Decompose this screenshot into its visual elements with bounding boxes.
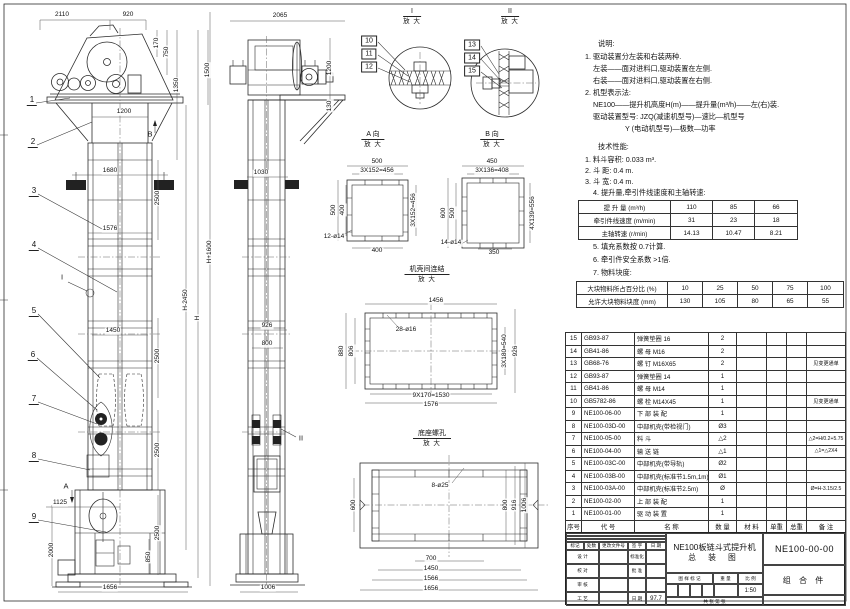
bom-qty: 1	[709, 495, 737, 508]
tb-doc: 更改文件号	[599, 542, 628, 550]
note-line: 驱动装置型号: JZQ(减速机型号)—速比—机型号	[593, 113, 745, 120]
dimension-label: 400	[371, 248, 384, 255]
view-label-name: II	[501, 8, 519, 17]
tb-sheets: 共 张 第 张	[666, 597, 763, 606]
bom-remark	[807, 508, 846, 521]
dimension-label: 2500	[155, 348, 162, 364]
section-mark: B	[147, 130, 152, 138]
dimension-label: 1030	[253, 170, 269, 177]
section-mark: II	[299, 434, 303, 442]
note-line: 2. 机型表示法:	[585, 89, 631, 96]
item-type: 组 合 件	[763, 565, 846, 595]
dimension-label: 806	[349, 345, 356, 358]
dimension-label: 3X136=408	[474, 168, 509, 175]
dimension-label: 1576	[102, 226, 118, 233]
bom-total-weight	[787, 358, 807, 371]
bom-total-weight	[787, 470, 807, 483]
bom-qty: 1	[709, 408, 737, 421]
bom-code: GB5782-86	[582, 395, 635, 408]
balloon-number: 8	[29, 452, 39, 462]
bom-code: GB41-86	[582, 383, 635, 396]
bom-unit-weight	[767, 470, 787, 483]
bom-code: NE100-03D-00	[582, 420, 635, 433]
note-line: 4. 提升量,牵引件线速度和主轴转速:	[593, 189, 706, 196]
dimension-label: 130	[327, 100, 334, 113]
bom-no: 12	[566, 370, 582, 383]
view-label-name: 机壳间连结	[405, 266, 450, 275]
bom-qty: △1	[709, 445, 737, 458]
bom-unit-weight	[767, 420, 787, 433]
bom-remark	[807, 345, 846, 358]
bom-unit-weight	[767, 458, 787, 471]
dimension-label: 800	[503, 499, 510, 512]
bom-total-weight	[787, 508, 807, 521]
balloon-number: 7	[29, 395, 39, 405]
bom-no: 1	[566, 508, 582, 521]
bom-qty: Ø1	[709, 470, 737, 483]
bom-unit-weight	[767, 333, 787, 346]
dimension-label: 1456	[428, 298, 444, 305]
note-line: 3. 斗 宽: 0.4 m.	[585, 178, 633, 185]
bom-no: 10	[566, 395, 582, 408]
view-label-scale: 放 大	[403, 17, 421, 25]
bom-no: 13	[566, 358, 582, 371]
bom-remark	[807, 470, 846, 483]
view-a-detail	[347, 180, 408, 241]
bom-qty: 2	[709, 358, 737, 371]
bom-unit-weight	[767, 508, 787, 521]
bom-total-weight	[787, 445, 807, 458]
bom-name: 弹簧垫圈 16	[635, 333, 709, 346]
bom-total-weight	[787, 495, 807, 508]
bom-material	[737, 383, 767, 396]
dimension-label: 3X152=456	[411, 192, 418, 227]
bom-name: 中部机壳(标准节2.5m)	[635, 483, 709, 496]
tb-sign: 签 字	[628, 542, 646, 550]
bom-material	[737, 495, 767, 508]
bom-row: 1 NE100-01-00 驱 动 装 置 1	[566, 508, 846, 521]
tb-date: 日 期	[646, 542, 666, 550]
bom-unit-weight	[767, 395, 787, 408]
dimension-label: 28-ø16	[395, 327, 418, 334]
tb-stamp: 图 样 标 记	[666, 573, 713, 584]
view-label: I 放 大	[403, 8, 421, 25]
note-line: 左装——面对进料口,驱动装置在左侧.	[593, 65, 712, 72]
bom-table: 15 GB93-87 弹簧垫圈 16 2 14 GB41-86 螺 母 M16 …	[565, 332, 846, 533]
drawing-sheet: 2110920170750135015001200168025001576H+1…	[0, 0, 850, 609]
bom-code: GB41-86	[582, 345, 635, 358]
bom-unit-weight	[767, 483, 787, 496]
bom-material	[737, 333, 767, 346]
view-label: A 向 放 大	[361, 131, 384, 148]
balloon-number: 6	[28, 351, 38, 361]
balloon-number: 2	[28, 138, 38, 148]
bom-name: 输 送 链	[635, 445, 709, 458]
dimension-label: 9X170=1530	[411, 393, 450, 400]
bom-no: 15	[566, 333, 582, 346]
leader-lines	[36, 42, 502, 532]
bom-no: 14	[566, 345, 582, 358]
dimension-label: 1350	[174, 77, 181, 93]
tb-review: 审 核	[566, 578, 599, 592]
dimension-label: 12-ø14	[323, 234, 346, 241]
dimension-label: 600	[351, 499, 358, 512]
dimension-label: 1656	[423, 586, 439, 593]
dimension-label: 1566	[423, 576, 439, 583]
tb-check: 校 对	[566, 564, 599, 578]
bom-row: 6 NE100-04-00 输 送 链 △1 △1=△2X4	[566, 445, 846, 458]
boxed-balloon-number: 11	[361, 49, 376, 60]
dimension-label: 1200	[327, 60, 334, 76]
bom-material	[737, 508, 767, 521]
bom-name: 上 部 装 配	[635, 495, 709, 508]
bom-unit-weight	[767, 358, 787, 371]
bom-row: 12 GB93-87 弹簧垫圈 14 1	[566, 370, 846, 383]
tb-date2: 日 期	[628, 592, 646, 606]
drawing-number: NE100-00-00	[763, 533, 846, 565]
note-line: 1. 料斗容积: 0.033 m³.	[585, 156, 656, 163]
dimension-label: 920	[122, 12, 135, 19]
dimension-label: 500	[450, 207, 457, 220]
tb-process: 工 艺	[566, 592, 599, 606]
balloon-number: 9	[29, 513, 39, 523]
bom-total-weight	[787, 345, 807, 358]
bom-material	[737, 420, 767, 433]
row-label: 提 升 量 (m³/h)	[579, 201, 671, 214]
note-line: 2. 斗 距: 0.4 m.	[585, 167, 633, 174]
bom-no: 4	[566, 470, 582, 483]
view-label: 底座螺孔 放 大	[413, 430, 451, 447]
dimension-label: 1576	[423, 402, 439, 409]
title-block: 标记 处数 更改文件号 签 字 日 期 设 计 标准化 校 对 批 准 审 核 …	[565, 532, 845, 605]
bom-code: GB93-87	[582, 333, 635, 346]
dimension-label: 2065	[272, 13, 288, 20]
bom-qty: 2	[709, 345, 737, 358]
bom-remark	[807, 408, 846, 421]
tb-approve: 批 准	[628, 564, 646, 578]
tb-scale-label: 比 例	[738, 573, 763, 584]
bom-qty: 1	[709, 383, 737, 396]
dimension-label: H+1600	[207, 240, 214, 265]
bom-code: GB68-76	[582, 358, 635, 371]
view-label-name: I	[403, 8, 421, 17]
bom-code: NE100-03B-00	[582, 470, 635, 483]
bom-qty: 1	[709, 370, 737, 383]
note-line: NE100——提升机高度H(m)——提升量(m³/h)——左(右)装.	[593, 101, 779, 108]
bom-name: 螺 栓 M14X45	[635, 395, 709, 408]
bom-no: 8	[566, 420, 582, 433]
bom-qty: Ø3	[709, 420, 737, 433]
bom-no: 3	[566, 483, 582, 496]
dimension-label: H	[195, 315, 202, 322]
bom-remark	[807, 383, 846, 396]
bom-total-weight	[787, 420, 807, 433]
dimension-label: 1450	[105, 328, 121, 335]
bom-no: 7	[566, 433, 582, 446]
table-row: 允许大块物料块度 (mm) 130 105 80 65 55	[577, 295, 844, 308]
bom-material	[737, 433, 767, 446]
bom-row: 14 GB41-86 螺 母 M16 2	[566, 345, 846, 358]
dimension-label: 1006	[522, 497, 529, 513]
tb-weight: 重 量	[713, 573, 738, 584]
bom-remark: 见变更通单	[807, 358, 846, 371]
dimension-label: 800	[261, 341, 274, 348]
bom-no: 9	[566, 408, 582, 421]
view-label-scale: 放 大	[480, 140, 504, 148]
note-line: 1. 驱动装置分左装和右装两种.	[585, 53, 681, 60]
note-line: Y (电动机型号)—极数—功率	[625, 125, 716, 132]
dimension-label: 500	[331, 204, 338, 217]
note-line: 5. 填充系数按 0.7计算.	[593, 243, 665, 250]
bom-remark: △1=△2X4	[807, 445, 846, 458]
dimension-label: 1200	[116, 109, 132, 116]
boxed-balloon-number: 12	[361, 62, 377, 73]
bom-unit-weight	[767, 383, 787, 396]
bom-code: NE100-03A-00	[582, 483, 635, 496]
bom-code: NE100-03C-00	[582, 458, 635, 471]
bom-name: 螺 母 M16	[635, 345, 709, 358]
bom-code: NE100-05-00	[582, 433, 635, 446]
bom-remark: Ø=H-3.15/2.5	[807, 483, 846, 496]
row-label: 允许大块物料块度 (mm)	[577, 295, 668, 308]
bom-row: 11 GB41-86 螺 母 M14 1	[566, 383, 846, 396]
bom-remark: △2=H/0.2+5.75	[807, 433, 846, 446]
table-row: 牵引件线速度 (m/min) 31 23 18	[579, 214, 798, 227]
tb-scale-value: 1:50	[738, 584, 763, 597]
tb-date-value: 97.7	[646, 592, 666, 606]
view-label-scale: 放 大	[361, 140, 384, 148]
bom-row: 8 NE100-03D-00 中部机壳(带检视门) Ø3	[566, 420, 846, 433]
balloon-number: 1	[27, 96, 37, 106]
dimension-label: H-2450	[183, 288, 190, 311]
bom-name: 弹簧垫圈 14	[635, 370, 709, 383]
bom-total-weight	[787, 408, 807, 421]
dimension-label: 8-ø25	[431, 483, 450, 490]
bom-name: 中部机壳(带检视门)	[635, 420, 709, 433]
drawing-title: NE100板链斗式提升机 总 装 图	[666, 533, 763, 573]
note-line: 7. 物料块度:	[593, 269, 632, 276]
bom-remark	[807, 420, 846, 433]
boxed-balloon-number: 14	[464, 53, 480, 64]
note-line: 右装——面对进料口,驱动装置在右侧.	[593, 77, 712, 84]
row-label: 大块物料所占百分比 (%)	[577, 282, 668, 295]
dimension-label: 2500	[155, 525, 162, 541]
dimension-label: 926	[513, 345, 520, 358]
side-view	[230, 40, 345, 585]
bom-row: 9 NE100-06-00 下 部 装 配 1	[566, 408, 846, 421]
bom-no: 6	[566, 445, 582, 458]
bom-row: 15 GB93-87 弹簧垫圈 16 2	[566, 333, 846, 346]
row-label: 牵引件线速度 (m/min)	[579, 214, 671, 227]
bom-qty: 1	[709, 508, 737, 521]
bom-row: 2 NE100-02-00 上 部 装 配 1	[566, 495, 846, 508]
dimension-label: 2500	[155, 190, 162, 206]
bom-remark	[807, 370, 846, 383]
tb-mark: 标记	[566, 542, 584, 550]
table-row: 提 升 量 (m³/h) 110 85 66	[579, 201, 798, 214]
view-label: II 放 大	[501, 8, 519, 25]
dimension-label: 1500	[205, 62, 212, 78]
section-mark: A	[63, 482, 68, 490]
bom-unit-weight	[767, 408, 787, 421]
view-label-name: B 向	[480, 131, 504, 140]
bom-qty: Ø2	[709, 458, 737, 471]
dimension-label: 2110	[54, 12, 70, 19]
dimension-label: 850	[146, 551, 153, 564]
bom-material	[737, 408, 767, 421]
view-label-scale: 放 大	[413, 439, 451, 447]
dimension-label: 926	[261, 323, 274, 330]
bom-code: NE100-06-00	[582, 408, 635, 421]
dimension-label: 450	[486, 159, 499, 166]
bom-name: 中部机壳(标准节1.5m,1m)	[635, 470, 709, 483]
bom-unit-weight	[767, 433, 787, 446]
dimension-label: 1006	[260, 585, 276, 592]
view-b-detail	[462, 178, 524, 248]
bom-material	[737, 345, 767, 358]
view-label: 机壳间连结 放 大	[405, 266, 450, 283]
bom-total-weight	[787, 395, 807, 408]
capacity-table: 提 升 量 (m³/h) 110 85 66 牵引件线速度 (m/min) 31…	[578, 200, 798, 240]
tb-count: 处数	[584, 542, 599, 550]
dimension-label: 2500	[155, 442, 162, 458]
balloon-number: 4	[29, 241, 39, 251]
bom-row: 7 NE100-05-00 料 斗 △2 △2=H/0.2+5.75	[566, 433, 846, 446]
dimension-label: 170	[154, 37, 161, 50]
drawing-title-line1: NE100板链斗式提升机	[673, 543, 755, 553]
table-row: 大块物料所占百分比 (%) 10 25 50 75 100	[577, 282, 844, 295]
bom-name: 螺 母 M14	[635, 383, 709, 396]
dimension-label: 2000	[49, 542, 56, 558]
tb-design: 设 计	[566, 550, 599, 564]
bom-material	[737, 483, 767, 496]
balloon-number: 5	[29, 307, 39, 317]
bom-material	[737, 395, 767, 408]
dimension-label: 880	[339, 345, 346, 358]
bom-no: 5	[566, 458, 582, 471]
bom-qty: △2	[709, 433, 737, 446]
bom-code: NE100-04-00	[582, 445, 635, 458]
tb-standardize: 标准化	[628, 550, 646, 564]
balloon-number: 3	[29, 187, 39, 197]
bom-total-weight	[787, 333, 807, 346]
bom-name: 料 斗	[635, 433, 709, 446]
bom-unit-weight	[767, 370, 787, 383]
bom-remark: 见变更通单	[807, 395, 846, 408]
bom-name: 驱 动 装 置	[635, 508, 709, 521]
bom-header-row: 序号 代 号 名 称 数 量 材 料 单重 总重 备 注	[566, 520, 846, 533]
bom-total-weight	[787, 370, 807, 383]
view-label-name: A 向	[361, 131, 384, 140]
dimension-label: 1656	[102, 585, 118, 592]
dimension-label: 3X180=540	[502, 333, 509, 368]
dimension-label: 500	[371, 159, 384, 166]
bom-total-weight	[787, 383, 807, 396]
dimension-label: 1680	[102, 168, 118, 175]
bom-name: 螺 钉 M16X65	[635, 358, 709, 371]
dimension-label: 1125	[52, 500, 68, 507]
dimension-label: 916	[512, 499, 519, 512]
table-row: 主轴转速 (r/min) 14.13 10.47 8.21	[579, 227, 798, 240]
boxed-balloon-number: 13	[464, 40, 480, 51]
bom-unit-weight	[767, 445, 787, 458]
bom-remark	[807, 495, 846, 508]
bom-name: 下 部 装 配	[635, 408, 709, 421]
dimension-label: 4X139=556	[530, 195, 537, 230]
bom-code: NE100-02-00	[582, 495, 635, 508]
bom-code: NE100-01-00	[582, 508, 635, 521]
dimension-label: 350	[488, 250, 501, 257]
bom-material	[737, 445, 767, 458]
bom-name: 中部机壳(带导轨)	[635, 458, 709, 471]
dimension-label: 750	[164, 46, 171, 59]
bom-material	[737, 370, 767, 383]
bom-no: 11	[566, 383, 582, 396]
bom-total-weight	[787, 458, 807, 471]
bom-material	[737, 458, 767, 471]
bom-no: 2	[566, 495, 582, 508]
bom-row: 5 NE100-03C-00 中部机壳(带导轨) Ø2	[566, 458, 846, 471]
bom-qty: 2	[709, 333, 737, 346]
note-line: 说明:	[598, 40, 614, 47]
dimension-label: 1450	[423, 566, 439, 573]
row-label: 主轴转速 (r/min)	[579, 227, 671, 240]
note-line: 技术性能:	[598, 143, 629, 150]
bom-unit-weight	[767, 495, 787, 508]
view-label-name: 底座螺孔	[413, 430, 451, 439]
boxed-balloon-number: 15	[464, 66, 480, 77]
bom-row: 10 GB5782-86 螺 栓 M14X45 1 见变更通单	[566, 395, 846, 408]
bom-unit-weight	[767, 345, 787, 358]
bom-total-weight	[787, 433, 807, 446]
section-mark: I	[61, 273, 63, 281]
bom-row: 13 GB68-76 螺 钉 M16X65 2 见变更通单	[566, 358, 846, 371]
boxed-balloon-number: 10	[361, 36, 377, 47]
bom-material	[737, 470, 767, 483]
lump-size-table: 大块物料所占百分比 (%) 10 25 50 75 100 允许大块物料块度 (…	[576, 281, 844, 308]
dimension-label: 14-ø14	[440, 240, 463, 247]
bom-qty: 1	[709, 395, 737, 408]
bom-total-weight	[787, 483, 807, 496]
view-label-scale: 放 大	[405, 275, 450, 283]
view-label-scale: 放 大	[501, 17, 519, 25]
drawing-title-line2: 总 装 图	[688, 553, 741, 563]
view-label: B 向 放 大	[480, 131, 504, 148]
bom-remark	[807, 333, 846, 346]
dimension-label: 400	[340, 204, 347, 217]
note-line: 6. 牵引件安全系数 >1倍.	[593, 256, 671, 263]
bom-row: 3 NE100-03A-00 中部机壳(标准节2.5m) Ø Ø=H-3.15/…	[566, 483, 846, 496]
dimension-label: 3X152=456	[359, 168, 394, 175]
bom-code: GB93-87	[582, 370, 635, 383]
bom-qty: Ø	[709, 483, 737, 496]
dimension-label: 600	[441, 207, 448, 220]
bom-material	[737, 358, 767, 371]
dimension-label: 700	[425, 556, 438, 563]
bom-remark	[807, 458, 846, 471]
bom-row: 4 NE100-03B-00 中部机壳(标准节1.5m,1m) Ø1	[566, 470, 846, 483]
